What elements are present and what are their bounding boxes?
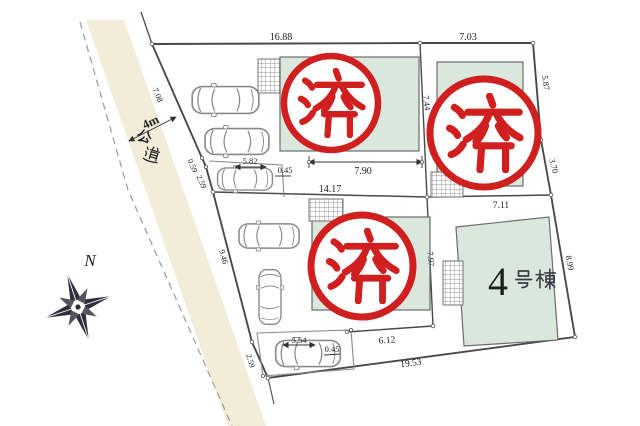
compass-star bbox=[34, 263, 122, 351]
site-plan-drawing: 16.88 7.03 7.08 0.59 2.59 9.46 2.59 5.82… bbox=[0, 0, 640, 426]
dim-road-front-upper: 7.08 bbox=[150, 86, 165, 104]
sold-stamp-3 bbox=[311, 215, 413, 317]
car-3 bbox=[218, 165, 273, 192]
porch-building-4 bbox=[443, 261, 463, 305]
car-1 bbox=[192, 83, 259, 116]
dim-road-front-lower: 2.59 bbox=[244, 353, 257, 369]
dim-lot3-bottom: 6.12 bbox=[378, 335, 396, 346]
sold-stamp-2 bbox=[430, 79, 538, 187]
dim-lot2-left: 7.44 bbox=[421, 95, 433, 112]
sold-stamp-1 bbox=[284, 56, 378, 150]
dim-lot3-frontage: 14.17 bbox=[319, 184, 342, 195]
compass-north-label: N bbox=[83, 251, 97, 270]
dim-lot1-carport-w: 5.82 bbox=[243, 156, 258, 166]
dim-road-front-a: 0.59 bbox=[185, 158, 199, 174]
dim-lot1-carport-off: 0.45 bbox=[278, 165, 293, 175]
dim-road-front-b: 2.59 bbox=[194, 174, 208, 190]
dim-top-lot1: 16.88 bbox=[270, 32, 293, 43]
dim-top-lot2: 7.03 bbox=[459, 32, 477, 43]
car-4 bbox=[239, 221, 299, 251]
dim-right-edge-upper: 5.87 bbox=[540, 75, 552, 91]
dim-lot3-carport-w: 5.54 bbox=[292, 335, 308, 345]
car-2 bbox=[205, 126, 269, 158]
dim-right-edge-mid: 3.70 bbox=[547, 157, 560, 174]
car-5 bbox=[256, 270, 283, 325]
building4-number: 4 bbox=[488, 259, 508, 304]
dim-lot3-lot4-divider: 7.97 bbox=[425, 251, 436, 267]
dim-lot1-span: 7.90 bbox=[354, 166, 372, 177]
dim-right-edge-lower: 8.99 bbox=[564, 255, 577, 272]
dim-lot3-carport-off: 0.45 bbox=[325, 344, 340, 354]
boundary-tail-top bbox=[141, 12, 152, 44]
boundary-tail-bottom bbox=[268, 378, 274, 404]
porch-building-1 bbox=[258, 59, 280, 93]
dim-bottom-edge: 19.53 bbox=[400, 358, 423, 371]
compass: N bbox=[34, 251, 122, 351]
dim-lot4-top: 7.11 bbox=[493, 201, 510, 211]
site-plan: 16.88 7.03 7.08 0.59 2.59 9.46 2.59 5.82… bbox=[0, 0, 640, 426]
